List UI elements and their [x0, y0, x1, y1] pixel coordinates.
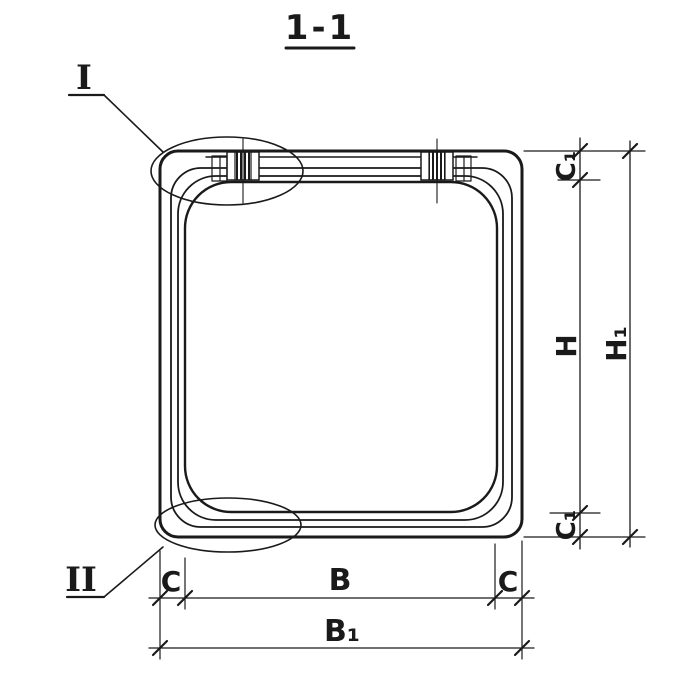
inner-contour-2 — [178, 176, 503, 520]
leader-line-i — [104, 95, 163, 152]
inner-contour-1 — [171, 168, 512, 527]
bottom-dimensions: C B C B₁ — [149, 541, 534, 659]
dim-label-c-right: C — [498, 565, 519, 598]
dim-label-b: B — [329, 563, 352, 598]
top-joint-left — [212, 139, 259, 203]
detail-label-i: I — [76, 58, 92, 98]
top-joint-right — [421, 139, 471, 203]
view-title: 1-1 — [285, 8, 355, 48]
section-body — [160, 151, 522, 537]
inner-surface-contour — [185, 182, 497, 512]
right-dimensions: C₁ H H₁ C₁ — [524, 138, 645, 549]
drawing-sheet: 1-1 I II — [0, 0, 700, 700]
dim-label-h1: H₁ — [600, 326, 633, 362]
dim-label-c1-bottom: C₁ — [552, 510, 582, 540]
leader-line-ii — [104, 547, 163, 597]
detail-callout-ellipse-ii — [155, 498, 301, 552]
outer-contour — [160, 151, 522, 537]
detail-label-ii: II — [65, 560, 97, 600]
dim-label-c1-top: C₁ — [552, 151, 582, 181]
dim-label-c-left: C — [161, 565, 182, 598]
view-title-text: 1-1 — [285, 8, 355, 48]
dim-label-h: H — [550, 334, 583, 357]
dim-label-b1: B₁ — [324, 614, 360, 649]
detail-callout-bottom: II — [65, 498, 301, 600]
section-1-1-drawing: 1-1 I II — [0, 0, 700, 700]
